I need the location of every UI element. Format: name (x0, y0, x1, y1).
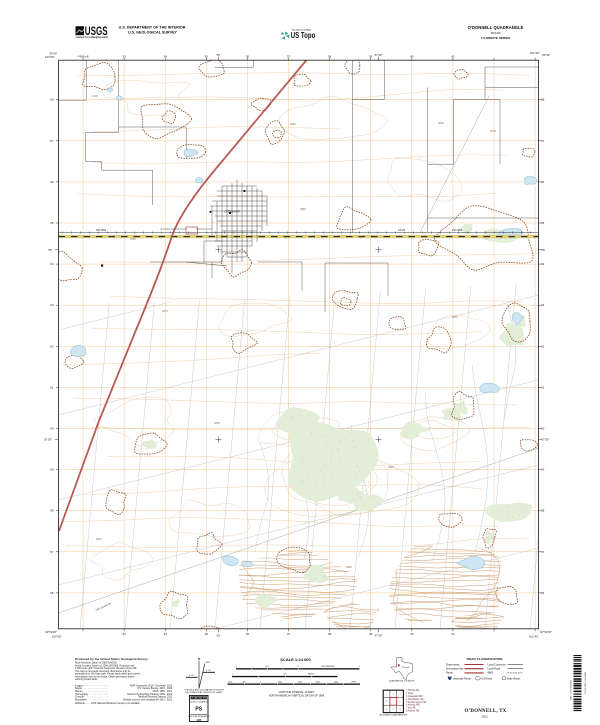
svg-text:33: 33 (122, 55, 126, 59)
svg-text:66: 66 (541, 180, 545, 184)
svg-text:2 Draw: 2 Draw (406, 692, 414, 695)
svg-text:1000: 1000 (228, 681, 233, 683)
svg-text:56: 56 (541, 591, 545, 595)
svg-text:36: 36 (246, 55, 250, 59)
svg-text:FM 2053: FM 2053 (96, 228, 107, 232)
svg-text:63: 63 (50, 303, 54, 307)
svg-text:Hydrography: Hydrography (75, 693, 89, 696)
svg-text:3001: 3001 (96, 537, 102, 541)
svg-text:1: 1 (231, 674, 233, 676)
svg-text:0: 0 (297, 666, 299, 668)
svg-text:PS: PS (195, 707, 202, 713)
svg-text:science for a changing world: science for a changing world (76, 37, 109, 39)
svg-text:DECLINATION AT CENTER OF SHEET: DECLINATION AT CENTER OF SHEET (186, 691, 224, 694)
svg-text:7 Key SE: 7 Key SE (406, 708, 416, 710)
svg-text:57: 57 (50, 550, 54, 554)
svg-text:3082: 3082 (130, 237, 136, 241)
svg-text:39: 39 (369, 55, 373, 59)
svg-text:4 New Moore SE: 4 New Moore SE (406, 698, 424, 701)
svg-text:US Route: US Route (481, 677, 492, 680)
svg-text:58: 58 (541, 509, 545, 513)
svg-text:NSN. 7643014645884: NSN. 7643014645884 (571, 679, 573, 700)
svg-text:2022: 2022 (481, 714, 488, 718)
svg-text:2930: 2930 (346, 565, 352, 569)
svg-text:0° 21′: 0° 21′ (189, 675, 195, 677)
svg-text:ADJOINING QUADRANGLES: ADJOINING QUADRANGLES (379, 713, 407, 716)
svg-text:US Topo: US Topo (291, 31, 316, 40)
svg-text:Contours: Contours (75, 696, 85, 699)
svg-text:5 Punkin Center NE: 5 Punkin Center NE (406, 701, 427, 704)
svg-text:37: 37 (287, 55, 291, 59)
svg-text:56: 56 (50, 591, 54, 595)
svg-text:FM 2053: FM 2053 (452, 228, 463, 232)
svg-text:entering private lands.: entering private lands. (75, 678, 98, 681)
svg-text:QUADRANGLE LOCATION: QUADRANGLE LOCATION (389, 680, 415, 683)
svg-text:65: 65 (541, 221, 545, 225)
svg-text:TEXAS: TEXAS (490, 31, 500, 35)
svg-text:1 000-meter grid: Universal Tr: 1 000-meter grid: Universal Transverse M… (75, 667, 137, 670)
svg-text:101°45′: 101°45′ (530, 51, 540, 55)
svg-text:generalized for this map scale: generalized for this map scale. Private … (75, 673, 141, 676)
svg-text:Multiple sources; see metadata: Multiple sources; see metadata file 2015… (123, 699, 173, 702)
svg-text:101°45′: 101°45′ (529, 635, 539, 639)
svg-text:reservations may not be shown.: reservations may not be shown. Obtain pe… (75, 675, 135, 678)
svg-text:102°00′: 102°00′ (45, 55, 55, 59)
svg-text:1 Tahoka SE: 1 Tahoka SE (406, 690, 419, 692)
svg-text:40: 40 (410, 55, 414, 59)
svg-text:ROAD CLASSIFICATION: ROAD CLASSIFICATION (467, 657, 503, 661)
svg-text:64: 64 (50, 262, 54, 266)
svg-text:3066: 3066 (300, 207, 306, 211)
svg-text:4000: 4000 (334, 681, 339, 683)
svg-text:MILES: MILES (308, 674, 315, 676)
svg-text:8: 8 (400, 709, 402, 711)
svg-text:3100: 3100 (92, 94, 98, 98)
svg-text:Produced by the United States: Produced by the United States Geological… (75, 657, 148, 661)
svg-text:57: 57 (541, 550, 545, 554)
svg-text:2995: 2995 (388, 465, 394, 469)
svg-text:SCALE 1:24 000: SCALE 1:24 000 (280, 657, 311, 662)
svg-text:0: 0 (260, 681, 262, 683)
svg-text:63: 63 (541, 303, 545, 307)
svg-text:67: 67 (50, 139, 54, 143)
svg-text:55′: 55′ (48, 248, 52, 252)
svg-text:57′30″: 57′30″ (375, 634, 383, 638)
svg-text:34: 34 (164, 55, 168, 59)
svg-text:³³²000m E: ³³²000m E (77, 55, 89, 59)
svg-text:National Elevation Dataset, 20: National Elevation Dataset, 2011 (138, 696, 172, 699)
svg-text:59: 59 (50, 468, 54, 472)
svg-text:1: 1 (358, 666, 360, 668)
svg-text:3091: 3091 (290, 122, 296, 126)
svg-text:3 Grassland SW: 3 Grassland SW (406, 695, 424, 698)
svg-text:34: 34 (164, 632, 168, 636)
svg-text:Names: Names (75, 691, 83, 693)
svg-text:5: 5 (400, 701, 402, 703)
svg-text:58: 58 (50, 509, 54, 513)
svg-text:7.5-MINUTE SERIES: 7.5-MINUTE SERIES (481, 36, 510, 40)
svg-text:35: 35 (205, 632, 209, 636)
svg-text:MN: MN (206, 662, 210, 664)
svg-text:37: 37 (287, 632, 291, 636)
svg-text:4: 4 (386, 701, 388, 703)
svg-text:67: 67 (541, 139, 545, 143)
svg-text:66: 66 (50, 180, 54, 184)
svg-text:60: 60 (50, 427, 54, 431)
svg-text:Wetlands..........FWS National: Wetlands..........FWS National Wetlands … (75, 702, 140, 705)
svg-text:3079: 3079 (490, 129, 496, 133)
svg-text:3000: 3000 (316, 681, 321, 683)
svg-text:KILOMETERS: KILOMETERS (322, 666, 336, 668)
svg-text:3084: 3084 (438, 121, 444, 125)
svg-text:33°00′: 33°00′ (542, 53, 550, 57)
svg-text:★: ★ (197, 657, 200, 661)
svg-text:O’DONNELL QUADRANGLE: O’DONNELL QUADRANGLE (468, 25, 524, 30)
svg-text:O’Donnell: O’Donnell (225, 209, 240, 213)
svg-text:U.S. DEPARTMENT OF THE INTERIO: U.S. DEPARTMENT OF THE INTERIOR (119, 26, 186, 30)
svg-text:500: 500 (242, 681, 246, 683)
svg-text:55′: 55′ (217, 634, 221, 638)
svg-text:40: 40 (410, 632, 414, 636)
svg-text:2: 2 (393, 694, 395, 696)
svg-text:57′30″: 57′30″ (542, 437, 550, 441)
svg-text:57′30″: 57′30″ (375, 53, 383, 57)
svg-text:2000: 2000 (298, 681, 303, 683)
svg-text:38: 38 (328, 55, 332, 59)
svg-text:NAIP, September 2016 - Decembe: NAIP, September 2016 - December 2016 (130, 684, 173, 687)
svg-text:61: 61 (541, 385, 545, 389)
svg-text:6 Ackerly NW: 6 Ackerly NW (406, 704, 421, 707)
svg-text:GNIS, 1980 - 2021: GNIS, 1980 - 2021 (153, 691, 173, 693)
svg-text:41: 41 (451, 632, 455, 636)
svg-text:38: 38 (328, 632, 332, 636)
svg-text:39: 39 (369, 632, 373, 636)
svg-text:Secondary Hwy: Secondary Hwy (446, 668, 464, 671)
svg-text:Local Connector: Local Connector (488, 663, 506, 666)
svg-text:ISBN 978-1-6045-2276-2: ISBN 978-1-6045-2276-2 (584, 672, 586, 695)
svg-text:55′: 55′ (217, 53, 221, 57)
svg-text:32°52′30″: 32°52′30″ (45, 630, 57, 634)
svg-text:0.5: 0.5 (284, 674, 288, 676)
svg-text:68: 68 (50, 98, 54, 102)
svg-text:41: 41 (451, 55, 455, 59)
svg-text:US 87: US 87 (398, 228, 406, 232)
svg-text:4WD: 4WD (488, 672, 494, 675)
svg-text:O’Donnell: O’Donnell (401, 667, 409, 669)
svg-text:FEET: FEET (351, 681, 357, 683)
svg-text:Local Road: Local Road (488, 668, 501, 671)
svg-text:U.S. Census Bureau, 2015 - 201: U.S. Census Bureau, 2015 - 2019 (137, 687, 173, 690)
svg-text:Roads: Roads (75, 688, 83, 690)
svg-text:62: 62 (50, 344, 54, 348)
svg-text:35: 35 (205, 55, 209, 59)
svg-text:1: 1 (386, 694, 388, 696)
svg-text:68: 68 (541, 98, 545, 102)
svg-text:60: 60 (541, 427, 545, 431)
svg-text:O’DONNELL, TX: O’DONNELL, TX (464, 709, 506, 714)
svg-text:62: 62 (541, 344, 545, 348)
svg-text:3050: 3050 (214, 421, 220, 425)
svg-text:North American Datum of 1983 (: North American Datum of 1983 (NAD83) (75, 662, 117, 665)
svg-text:This map is not a legal docume: This map is not a legal document. Bounda… (75, 670, 131, 673)
svg-text:100,000-m SQUARE ID: 100,000-m SQUARE ID (190, 700, 209, 703)
svg-text:Ramp: Ramp (446, 672, 453, 675)
svg-text:World Geodetic System of 1984: World Geodetic System of 1984 (WGS84). P… (75, 664, 135, 667)
svg-text:Expressway: Expressway (446, 663, 460, 666)
svg-text:1: 1 (235, 666, 237, 668)
svg-text:Interstate Route: Interstate Route (453, 677, 471, 680)
svg-text:3073: 3073 (162, 309, 168, 313)
svg-text:1000: 1000 (278, 681, 283, 683)
svg-text:61: 61 (50, 385, 54, 389)
svg-text:36: 36 (246, 632, 250, 636)
svg-text:National Hydrography Dataset,: National Hydrography Dataset, 2009 - 201… (127, 693, 173, 696)
svg-text:U.S. GEOLOGICAL SURVEY: U.S. GEOLOGICAL SURVEY (128, 31, 178, 35)
svg-text:3° 54′: 3° 54′ (206, 670, 212, 672)
svg-text:Boundaries: Boundaries (75, 699, 88, 702)
svg-text:6: 6 (386, 709, 388, 711)
svg-text:GRID ZONE DESIGNATION: GRID ZONE DESIGNATION (188, 715, 210, 718)
svg-text:Imagery: Imagery (75, 684, 84, 687)
svg-text:14R: 14R (196, 718, 201, 722)
svg-text:0.5: 0.5 (266, 666, 270, 668)
svg-text:65: 65 (50, 221, 54, 225)
svg-text:32°52′30″: 32°52′30″ (540, 630, 552, 634)
svg-text:33: 33 (122, 632, 126, 636)
svg-text:1: 1 (336, 674, 338, 676)
svg-text:102°00′: 102°00′ (52, 635, 62, 639)
svg-text:3035: 3035 (452, 315, 458, 319)
svg-text:7: 7 (393, 709, 395, 711)
svg-text:State Route: State Route (507, 677, 521, 680)
svg-text:59: 59 (541, 468, 545, 472)
svg-text:57′30″: 57′30″ (44, 437, 52, 441)
svg-text:64: 64 (541, 262, 545, 266)
svg-text:NORTH AMERICAN VERTICAL DATUM: NORTH AMERICAN VERTICAL DATUM OF 1988 (269, 695, 325, 698)
svg-text:8 Ackerly NE: 8 Ackerly NE (406, 710, 420, 713)
svg-text:U.S. NATIONAL GRID: U.S. NATIONAL GRID (190, 697, 207, 700)
svg-text:3: 3 (400, 694, 402, 696)
svg-text:55′: 55′ (542, 248, 546, 252)
